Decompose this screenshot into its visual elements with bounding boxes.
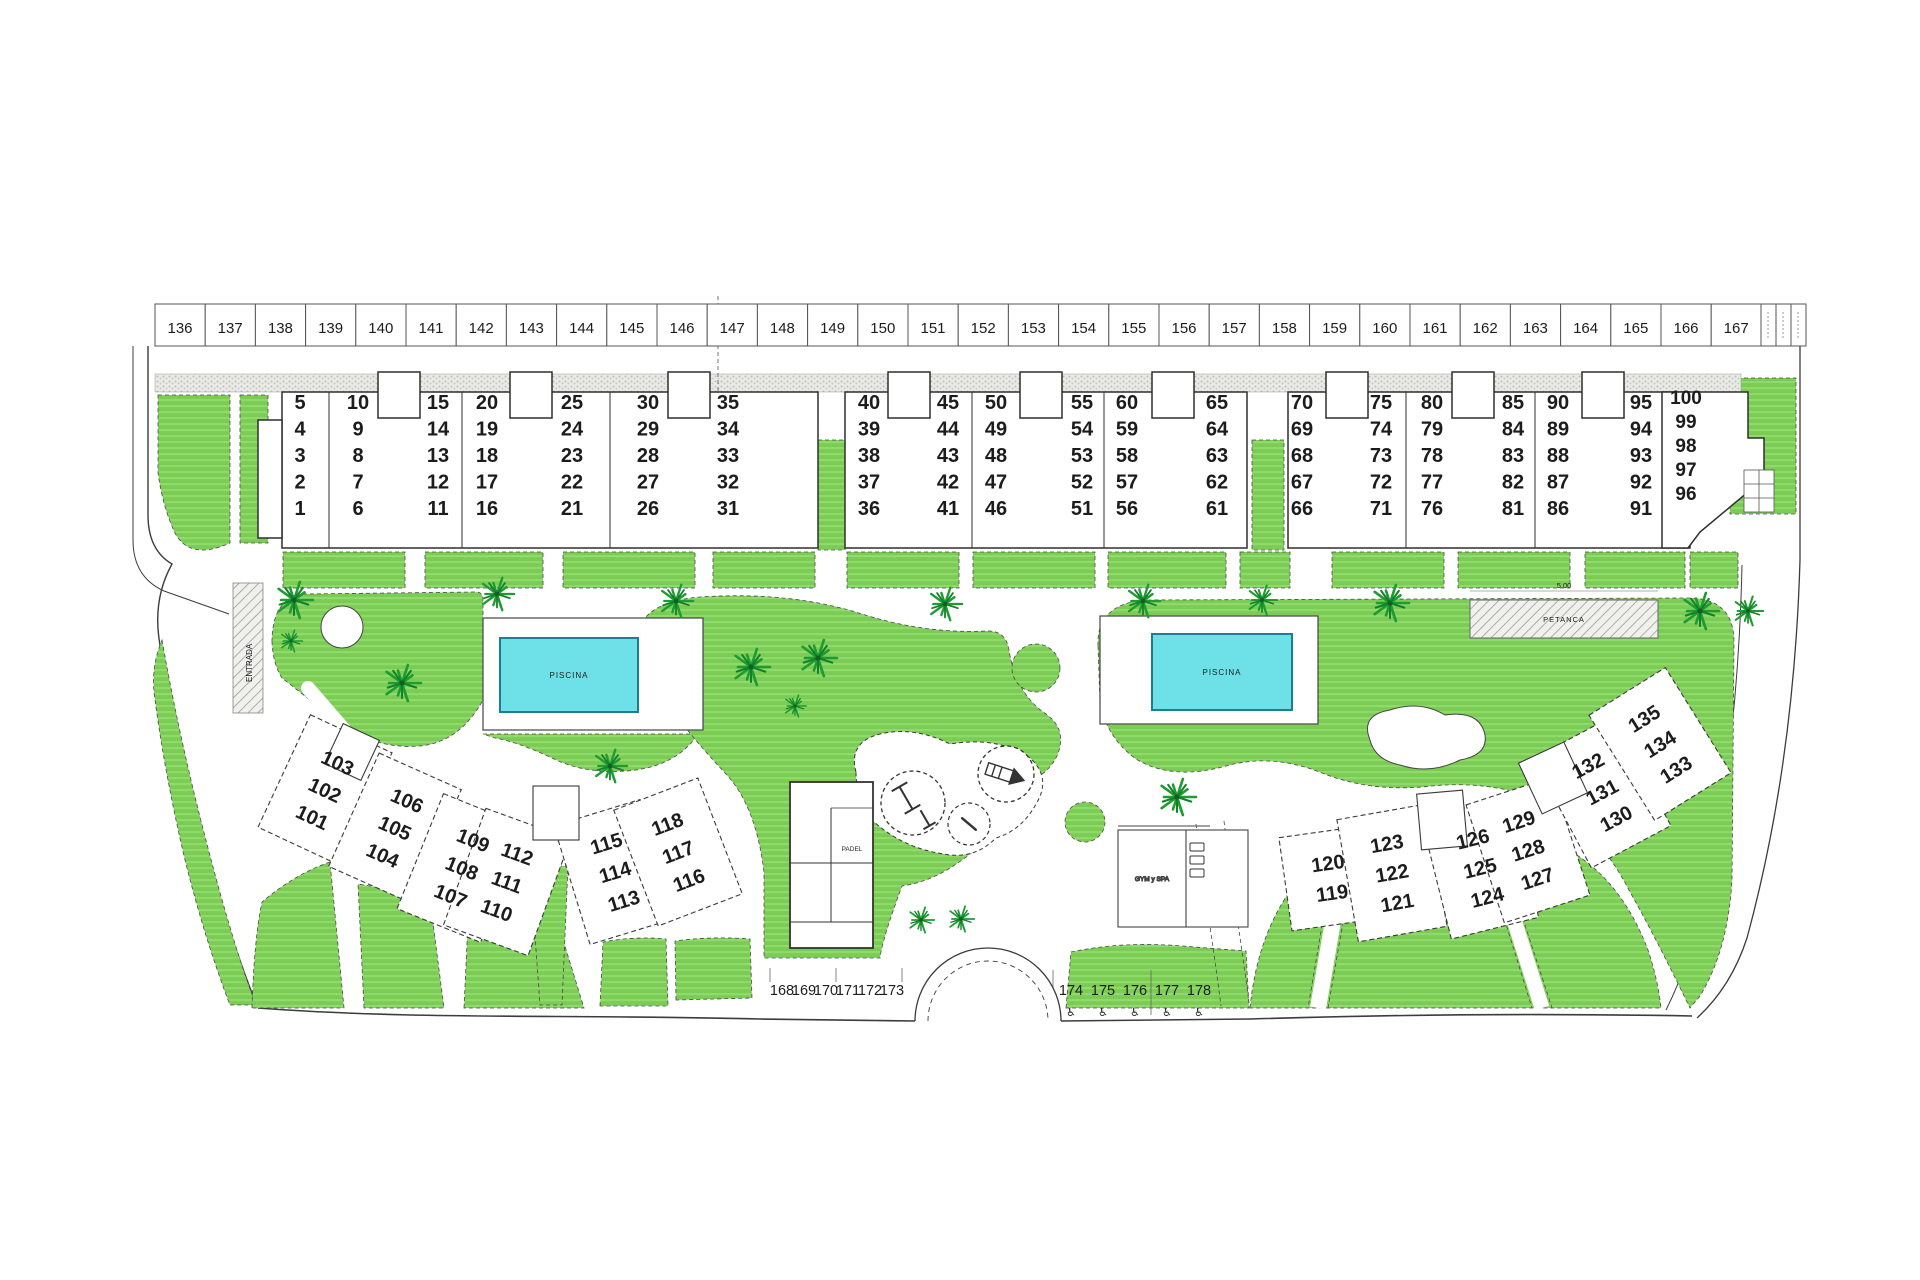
- unit-number: 95: [1630, 392, 1652, 414]
- garden-green: [1585, 552, 1685, 588]
- unit-number: 9: [352, 419, 363, 441]
- parking-space-number: 140: [368, 320, 393, 337]
- unit-number: 7: [352, 472, 363, 494]
- unit-number: 20: [476, 392, 498, 414]
- unit-number: 47: [985, 472, 1007, 494]
- unit-number: 96: [1675, 484, 1696, 505]
- unit-number: 34: [717, 419, 740, 441]
- parking-space-number: 167: [1724, 320, 1749, 337]
- parking-row-top: 1361371381391401411421431441451461471481…: [155, 304, 1806, 346]
- parking-space-number: 173: [880, 983, 904, 999]
- unit-number: 6: [352, 498, 363, 520]
- unit-number: 78: [1421, 445, 1443, 467]
- parking-space-number: 141: [418, 320, 443, 337]
- petanca-label: PETANCA: [1543, 615, 1585, 624]
- unit-number: 74: [1370, 419, 1393, 441]
- unit-number: 1: [294, 498, 305, 520]
- unit-number: 29: [637, 419, 659, 441]
- unit-number: 11: [427, 498, 448, 520]
- unit-number: 38: [858, 445, 880, 467]
- parking-space-number: 166: [1673, 320, 1698, 337]
- unit-number: 40: [858, 392, 880, 414]
- garden-green: [675, 938, 752, 1000]
- pool-label: PISCINA: [1202, 668, 1241, 677]
- parking-space-number: 151: [920, 320, 945, 337]
- unit-number: 55: [1071, 392, 1093, 414]
- parking-space-number: 165: [1623, 320, 1648, 337]
- unit-number: 71: [1370, 498, 1392, 520]
- unit-number: 10: [347, 392, 369, 414]
- stair-core: [1326, 372, 1368, 418]
- parking-space-number: 176: [1123, 983, 1147, 999]
- site-plan-page: ENTRADA 54321109876151413121120191817162…: [0, 0, 1920, 1280]
- lower-stair-cores: [533, 786, 579, 840]
- unit-number: 15: [427, 392, 449, 414]
- unit-number: 70: [1291, 392, 1313, 414]
- unit-number: 83: [1502, 445, 1524, 467]
- stair-core: [888, 372, 930, 418]
- garden-green: [973, 552, 1095, 588]
- unit-number: 90: [1547, 392, 1569, 414]
- garden-green: [1240, 552, 1290, 588]
- padel-label: PADEL: [842, 846, 863, 853]
- wheelchair-icon: ♿: [1162, 1007, 1172, 1019]
- entrance-label: ENTRADA: [245, 643, 254, 682]
- unit-number: 97: [1675, 460, 1696, 481]
- wheelchair-icon: ♿: [1098, 1007, 1108, 1019]
- stair-core: [1020, 372, 1062, 418]
- unit-number: 16: [476, 498, 498, 520]
- unit-number: 22: [561, 472, 583, 494]
- unit-number: 49: [985, 419, 1007, 441]
- petanca-dimension: 5.00: [1557, 581, 1572, 590]
- unit-number: 23: [561, 445, 583, 467]
- pool-area-east: PISCINA: [1100, 616, 1318, 724]
- unit-number: 68: [1291, 445, 1313, 467]
- unit-number: 3: [294, 445, 305, 467]
- unit-number: 67: [1291, 472, 1313, 494]
- wheelchair-icon: ♿: [1194, 1007, 1204, 1019]
- unit-number: 51: [1071, 498, 1093, 520]
- parking-space-number: 158: [1272, 320, 1297, 337]
- parking-space-number: 177: [1155, 983, 1179, 999]
- stair-core: [668, 372, 710, 418]
- building-1-35: [258, 420, 282, 538]
- unit-number: 13: [427, 445, 449, 467]
- parking-space-number: 170: [814, 983, 838, 999]
- wheelchair-icon: ♿: [1130, 1007, 1140, 1019]
- parking-space-number: 154: [1071, 320, 1096, 337]
- unit-number: 91: [1630, 498, 1652, 520]
- unit-number: 41: [937, 498, 959, 520]
- parking-space-number: 162: [1473, 320, 1498, 337]
- unit-number: 52: [1071, 472, 1093, 494]
- unit-number: 75: [1370, 392, 1392, 414]
- parking-space-number: 139: [318, 320, 343, 337]
- unit-number: 46: [985, 498, 1007, 520]
- pool-area-west: PISCINA: [483, 618, 703, 730]
- parking-space-number: 138: [268, 320, 293, 337]
- unit-number: 45: [937, 392, 959, 414]
- unit-number: 35: [717, 392, 739, 414]
- unit-number: 32: [717, 472, 739, 494]
- parking-space-number: 172: [858, 983, 882, 999]
- unit-number: 48: [985, 445, 1007, 467]
- unit-number: 100: [1670, 388, 1702, 409]
- unit-number: 86: [1547, 498, 1569, 520]
- parking-space-number: 136: [167, 320, 192, 337]
- unit-number: 54: [1071, 419, 1094, 441]
- unit-number: 94: [1630, 419, 1653, 441]
- unit-number: 36: [858, 498, 880, 520]
- unit-number: 30: [637, 392, 659, 414]
- parking-space-number: 161: [1422, 320, 1447, 337]
- garden-green: [1065, 802, 1105, 842]
- unit-number: 17: [476, 472, 498, 494]
- parking-space-number: 143: [519, 320, 544, 337]
- padel-court: PADEL: [790, 782, 873, 948]
- parking-space-number: 160: [1372, 320, 1397, 337]
- unit-number: 84: [1502, 419, 1525, 441]
- pergola-grid: [1744, 470, 1774, 512]
- garden-green: [563, 552, 695, 588]
- garden-green: [1458, 552, 1570, 588]
- unit-number: 24: [561, 419, 584, 441]
- parking-space-number: 145: [619, 320, 644, 337]
- unit-number: 88: [1547, 445, 1569, 467]
- stair-core: [510, 372, 552, 418]
- unit-number: 53: [1071, 445, 1093, 467]
- site-plan: ENTRADA 54321109876151413121120191817162…: [0, 0, 1920, 1280]
- unit-number: 66: [1291, 498, 1313, 520]
- parking-space-number: 156: [1171, 320, 1196, 337]
- stair-core: [1152, 372, 1194, 418]
- unit-number: 119: [1315, 881, 1350, 907]
- unit-number: 19: [476, 419, 498, 441]
- garden-green: [283, 552, 405, 588]
- parking-space-number: 169: [792, 983, 816, 999]
- garden-green: [713, 552, 815, 588]
- unit-number: 56: [1116, 498, 1138, 520]
- unit-number: 12: [427, 472, 449, 494]
- unit-number: 79: [1421, 419, 1443, 441]
- playground-circle: [881, 771, 945, 835]
- unit-number: 60: [1116, 392, 1138, 414]
- parking-space-number: 155: [1121, 320, 1146, 337]
- parking-space-number: 164: [1573, 320, 1598, 337]
- unit-number: 59: [1116, 419, 1138, 441]
- garden-green: [1252, 440, 1284, 550]
- parking-space-number: 178: [1187, 983, 1211, 999]
- unit-number: 98: [1675, 436, 1696, 457]
- unit-number: 99: [1675, 412, 1696, 433]
- parking-space-number: 146: [669, 320, 694, 337]
- garden-green: [425, 552, 543, 588]
- unit-number: 39: [858, 419, 880, 441]
- unit-number: 44: [937, 419, 960, 441]
- unit-number: 120: [1310, 851, 1346, 877]
- unit-number: 69: [1291, 419, 1313, 441]
- unit-number: 81: [1502, 498, 1524, 520]
- parking-space-number: 152: [971, 320, 996, 337]
- unit-number: 14: [427, 419, 450, 441]
- unit-number: 58: [1116, 445, 1138, 467]
- unit-number: 65: [1206, 392, 1228, 414]
- pool-label: PISCINA: [549, 671, 588, 680]
- unit-number: 63: [1206, 445, 1228, 467]
- unit-number: 64: [1206, 419, 1229, 441]
- parking-space-number: 149: [820, 320, 845, 337]
- unit-number: 8: [352, 445, 363, 467]
- unit-number: 77: [1421, 472, 1443, 494]
- parking-space-number: 144: [569, 320, 594, 337]
- unit-number: 89: [1547, 419, 1569, 441]
- unit-number: 2: [294, 472, 305, 494]
- unit-number: 82: [1502, 472, 1524, 494]
- unit-number: 72: [1370, 472, 1392, 494]
- parking-space-number: 142: [469, 320, 494, 337]
- stair-core: [1582, 372, 1624, 418]
- unit-number: 61: [1206, 498, 1228, 520]
- unit-number: 73: [1370, 445, 1392, 467]
- unit-number: 80: [1421, 392, 1443, 414]
- garden-green: [1690, 552, 1738, 588]
- parking-space-number: 153: [1021, 320, 1046, 337]
- unit-number: 62: [1206, 472, 1228, 494]
- garden-green: [847, 552, 959, 588]
- parking-space-number: 163: [1523, 320, 1548, 337]
- gym-spa-building: GYM y SPA: [1118, 826, 1248, 927]
- unit-number: 18: [476, 445, 498, 467]
- unit-number: 25: [561, 392, 583, 414]
- unit-number: 21: [561, 498, 583, 520]
- unit-number: 85: [1502, 392, 1524, 414]
- unit-number: 31: [717, 498, 739, 520]
- parking-space-number: 157: [1222, 320, 1247, 337]
- parking-space-number: 174: [1059, 983, 1083, 999]
- unit-number: 37: [858, 472, 880, 494]
- stair-core: [1452, 372, 1494, 418]
- garden-green: [1012, 644, 1060, 692]
- stair-core: [378, 372, 420, 418]
- unit-number: 93: [1630, 445, 1652, 467]
- unit-number: 42: [937, 472, 959, 494]
- parking-space-number: 159: [1322, 320, 1347, 337]
- parking-space-number: 175: [1091, 983, 1115, 999]
- unit-number: 27: [637, 472, 659, 494]
- unit-number: 92: [1630, 472, 1652, 494]
- garden-green: [600, 938, 668, 1006]
- unit-number: 43: [937, 445, 959, 467]
- parking-space-number: 171: [836, 983, 860, 999]
- unit-number: 26: [637, 498, 659, 520]
- parking-space-number: 150: [870, 320, 895, 337]
- parking-space-number: 148: [770, 320, 795, 337]
- unit-number: 4: [294, 419, 306, 441]
- unit-number: 33: [717, 445, 739, 467]
- unit-number: 57: [1116, 472, 1138, 494]
- garden-green: [818, 440, 845, 550]
- gym-label: GYM y SPA: [1135, 876, 1170, 883]
- unit-number: 28: [637, 445, 659, 467]
- unit-number: 87: [1547, 472, 1569, 494]
- garden-green: [1108, 552, 1226, 588]
- garden-path: [321, 606, 363, 648]
- garden-green: [1332, 552, 1444, 588]
- unit-number: 50: [985, 392, 1007, 414]
- unit-number: 76: [1421, 498, 1443, 520]
- parking-space-number: 137: [218, 320, 243, 337]
- parking-space-number: 168: [770, 983, 794, 999]
- unit-number: 5: [294, 392, 305, 414]
- parking-space-number: 147: [720, 320, 745, 337]
- wheelchair-icon: ♿: [1066, 1007, 1076, 1019]
